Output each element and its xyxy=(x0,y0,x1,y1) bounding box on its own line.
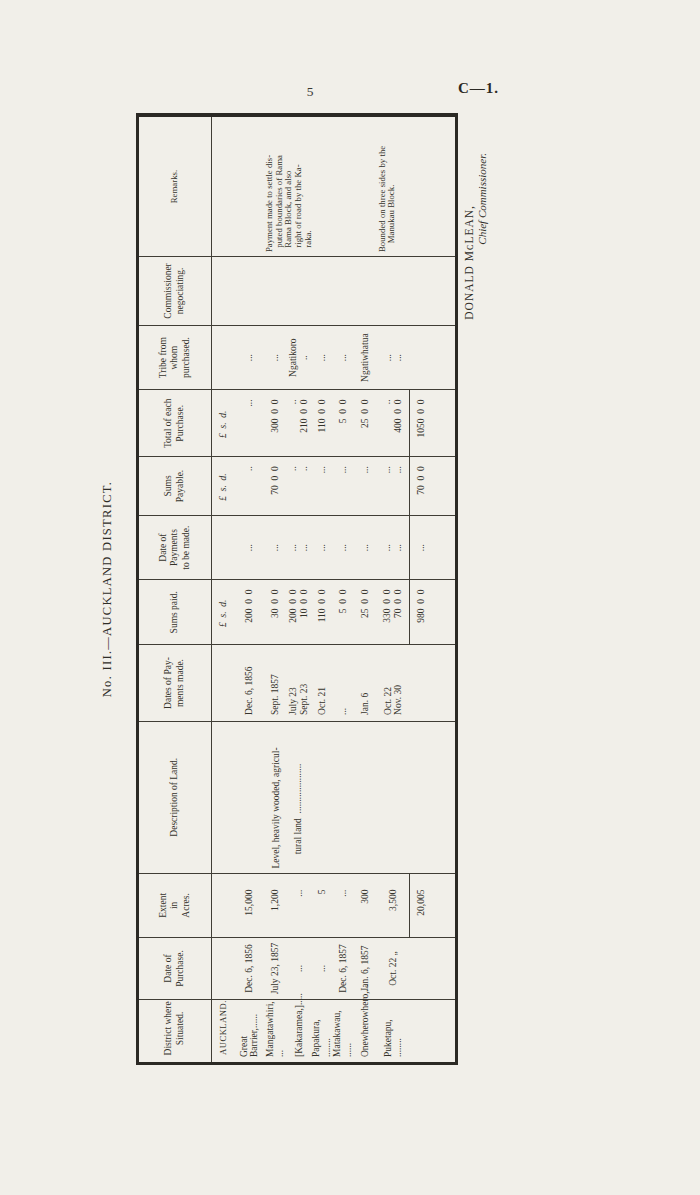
table-row: Mangatawhiri, ...July 23, 18571,200Level… xyxy=(264,117,286,1062)
cell-remarks xyxy=(332,117,353,257)
cell-dates_paid: Jan. 6 xyxy=(354,645,377,722)
cell-district: Great Barrier,...... xyxy=(234,999,264,1062)
cell-extent: 15,000 xyxy=(234,873,264,938)
cell-commissioner xyxy=(377,257,410,326)
cell-remarks xyxy=(410,117,455,257)
cell-date_due: ... xyxy=(234,515,264,580)
cell-date_purchase: Dec. 6, 1856 xyxy=(234,938,264,1000)
cell-date_purchase: July 23, 1857 xyxy=(264,938,286,1000)
cell-date_purchase: Jan. 6, 1857 xyxy=(354,938,377,1000)
cell-commissioner xyxy=(286,257,311,326)
cell-sums_paid: 200 0 0 xyxy=(234,580,264,645)
cell-sums_payable: .. xyxy=(234,457,264,516)
cell-tribe: ... xyxy=(311,325,332,390)
cell-date_due xyxy=(211,515,234,580)
signature-block: DONALD MᴄLEAN, Chief Commissioner. xyxy=(463,120,488,1065)
cell-sums_payable: ... xyxy=(332,457,353,516)
totals-row: 20,005980 0 0...70 0 01050 0 0 xyxy=(410,117,455,1062)
cell-commissioner xyxy=(354,257,377,326)
cell-description xyxy=(377,721,410,873)
cell-district: Puketapu, ........ xyxy=(377,999,410,1062)
cell-commissioner xyxy=(332,257,353,326)
column-header-sums_paid: Sums paid. xyxy=(139,580,211,645)
cell-remarks: Bounded on three sides by the Manukau Bl… xyxy=(377,117,410,257)
cell-date_due: ... ... xyxy=(286,515,311,580)
cell-date_purchase: Dec. 6, 1857 xyxy=(332,938,353,1000)
cell-sums_paid: 110 0 0 xyxy=(311,580,332,645)
cell-commissioner xyxy=(264,257,286,326)
cell-sums_paid: 330 0 0 70 0 0 xyxy=(377,580,410,645)
cell-total: 25 0 0 xyxy=(354,390,377,457)
document-code: C—1. xyxy=(458,80,499,97)
cell-total: 1050 0 0 xyxy=(410,390,455,457)
column-header-date_due: Date of Payments to be made. xyxy=(139,515,211,580)
cell-district: [Kakaramea,]..... xyxy=(286,999,311,1062)
cell-dates_paid: Dec. 6, 1856 xyxy=(234,645,264,722)
cell-date_due: ... xyxy=(410,515,455,580)
rotated-table-sheet: No. III.—AUCKLAND DISTRICT. District whe… xyxy=(100,113,500,1065)
remarks-text: Payment made to settle dis- puted bounda… xyxy=(265,117,274,252)
cell-tribe: Ngatikoro .. xyxy=(286,325,311,390)
cell-extent: 5 xyxy=(311,873,332,938)
page-number: 5 xyxy=(290,84,330,100)
column-header-sums_payable: Sums Payable. xyxy=(139,457,211,516)
cell-total: 300 0 0 xyxy=(264,390,286,457)
table-row: [Kakaramea,]...........July 23 Sept. 232… xyxy=(286,117,311,1062)
cell-extent: 3,500 xyxy=(377,873,410,938)
column-header-commissioner: Commissioner negociating. xyxy=(139,257,211,326)
cell-district xyxy=(410,999,455,1062)
cell-date_due: ... xyxy=(354,515,377,580)
cell-commissioner xyxy=(234,257,264,326)
cell-sums_paid: 5 0 0 xyxy=(332,580,353,645)
column-header-description: Description of Land. xyxy=(139,721,211,873)
cell-sums_payable: ... ... xyxy=(377,457,410,516)
cell-district: Mangatawhiri, ... xyxy=(264,999,286,1062)
cell-date_due: ... ... xyxy=(377,515,410,580)
cell-sums_payable: ... xyxy=(311,457,332,516)
cell-description: Level, heavily wooded, agricul- tural la… xyxy=(264,721,286,873)
cell-sums_paid: 980 0 0 xyxy=(410,580,455,645)
cell-remarks xyxy=(211,117,234,257)
cell-date_due: ... xyxy=(332,515,353,580)
cell-district: Matakawau, ...... xyxy=(332,999,353,1062)
cell-remarks xyxy=(311,117,332,257)
scanned-document-page: 5 C—1. No. III.—AUCKLAND DISTRICT. Distr… xyxy=(0,0,700,1195)
cell-date_purchase: Oct. 22 „ xyxy=(377,938,410,1000)
cell-sums_paid: 200 0 0 10 0 0 xyxy=(286,580,311,645)
remarks-text: Bounded on three sides by the Manukau Bl… xyxy=(378,117,387,252)
cell-date_due: ... xyxy=(264,515,286,580)
cell-sums_payable: £ s. d. xyxy=(211,457,234,516)
cell-tribe: ... xyxy=(264,325,286,390)
cell-total: ... xyxy=(234,390,264,457)
cell-commissioner xyxy=(311,257,332,326)
cell-description xyxy=(410,721,455,873)
table-frame: District where Situated.Date of Purchase… xyxy=(136,113,458,1065)
cell-dates_paid: ... xyxy=(332,645,353,722)
cell-tribe xyxy=(410,325,455,390)
cell-sums_payable: ... xyxy=(354,457,377,516)
cell-district: AUCKLAND. xyxy=(211,999,234,1062)
cell-total: .. 210 0 0 xyxy=(286,390,311,457)
cell-district: Papakura, ........ xyxy=(311,999,332,1062)
cell-sums_payable: 70 0 0 xyxy=(264,457,286,516)
cell-total: £ s. d. xyxy=(211,390,234,457)
signature-name: DONALD MᴄLEAN, xyxy=(463,120,475,1065)
column-header-tribe: Tribe from whom purchased. xyxy=(139,325,211,390)
cell-sums_paid: 25 0 0 xyxy=(354,580,377,645)
cell-commissioner xyxy=(211,257,234,326)
cell-dates_paid: Sept. 1857 xyxy=(264,645,286,722)
table-row: Matakawau, ......Dec. 6, 1857......5 0 0… xyxy=(332,117,353,1062)
table-row: Onewherowhero,...Jan. 6, 1857300Jan. 625… xyxy=(354,117,377,1062)
cell-extent: 300 xyxy=(354,873,377,938)
description-text: Level, heavily wooded, agricul- tural la… xyxy=(265,722,274,869)
column-header-extent: Extent in Acres. xyxy=(139,873,211,938)
cell-sums_paid: £ s. d. xyxy=(211,580,234,645)
cell-dates_paid xyxy=(211,645,234,722)
cell-date_purchase xyxy=(410,938,455,1000)
table-title: No. III.—AUCKLAND DISTRICT. xyxy=(100,113,120,1065)
column-header-district: District where Situated. xyxy=(139,999,211,1062)
cell-total: 5 0 0 xyxy=(332,390,353,457)
cell-district: Onewherowhero,... xyxy=(354,999,377,1062)
cell-date_purchase: ... xyxy=(311,938,332,1000)
cell-extent: ... xyxy=(332,873,353,938)
table-row: AUCKLAND.£ s. d.£ s. d.£ s. d. xyxy=(211,117,234,1062)
cell-description xyxy=(332,721,353,873)
land-purchases-table: District where Situated.Date of Purchase… xyxy=(139,117,455,1062)
cell-dates_paid xyxy=(410,645,455,722)
cell-remarks: Payment made to settle dis- puted bounda… xyxy=(264,117,286,257)
cell-date_purchase: ... xyxy=(286,938,311,1000)
cell-dates_paid: Oct. 21 xyxy=(311,645,332,722)
cell-dates_paid: Oct. 22 Nov. 30 xyxy=(377,645,410,722)
cell-description xyxy=(211,721,234,873)
cell-tribe: Ngatiwhatua xyxy=(354,325,377,390)
table-row: Great Barrier,......Dec. 6, 185615,000De… xyxy=(234,117,264,1062)
cell-tribe: ... ... xyxy=(377,325,410,390)
cell-extent xyxy=(211,873,234,938)
table-row: Papakura, ...........5Oct. 21110 0 0....… xyxy=(311,117,332,1062)
cell-description xyxy=(354,721,377,873)
cell-tribe: ... xyxy=(234,325,264,390)
signature-role: Chief Commissioner. xyxy=(476,120,488,1065)
cell-commissioner xyxy=(410,257,455,326)
column-header-remarks: Remarks. xyxy=(139,117,211,257)
cell-total: 110 0 0 xyxy=(311,390,332,457)
cell-total: .. 400 0 0 xyxy=(377,390,410,457)
table-row: Puketapu, ........Oct. 22 „3,500Oct. 22 … xyxy=(377,117,410,1062)
cell-extent: 20,005 xyxy=(410,873,455,938)
cell-extent: ... xyxy=(286,873,311,938)
cell-tribe: ... xyxy=(332,325,353,390)
cell-sums_payable: .. .. xyxy=(286,457,311,516)
cell-description xyxy=(234,721,264,873)
cell-sums_paid: 30 0 0 xyxy=(264,580,286,645)
cell-date_purchase xyxy=(211,938,234,1000)
column-header-dates_paid: Dates of Pay- ments made. xyxy=(139,645,211,722)
cell-description xyxy=(311,721,332,873)
cell-sums_payable: 70 0 0 xyxy=(410,457,455,516)
cell-remarks xyxy=(234,117,264,257)
column-header-date_purchase: Date of Purchase. xyxy=(139,938,211,1000)
cell-extent: 1,200 xyxy=(264,873,286,938)
cell-remarks xyxy=(354,117,377,257)
cell-date_due: ... xyxy=(311,515,332,580)
cell-dates_paid: July 23 Sept. 23 xyxy=(286,645,311,722)
cell-tribe xyxy=(211,325,234,390)
column-header-total: Total of each Purchase. xyxy=(139,390,211,457)
